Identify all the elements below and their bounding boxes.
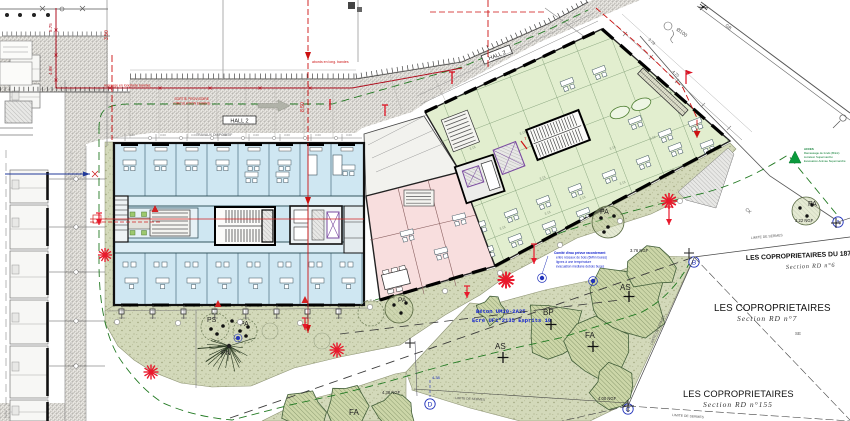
svg-text:3.00: 3.00: [253, 133, 259, 137]
svg-text:TRAVAUX DISPOSITIF: TRAVAUX DISPOSITIF: [196, 133, 232, 137]
svg-text:Ø100: Ø100: [675, 27, 689, 39]
svg-text:HALL 2: HALL 2: [230, 118, 248, 124]
svg-text:Béton UM10-2A35: Béton UM10-2A35: [476, 308, 526, 315]
svg-text:3.00: 3.00: [315, 133, 321, 137]
svg-text:4.38 NGF: 4.38 NGF: [382, 390, 401, 395]
svg-text:D: D: [428, 401, 433, 408]
svg-text:3.50: 3.50: [104, 30, 110, 40]
svg-text:AS: AS: [495, 342, 506, 351]
svg-text:abords en long. bandes: abords en long. bandes: [312, 60, 349, 64]
svg-text:CK: CK: [744, 207, 752, 215]
svg-text:AS: AS: [620, 283, 631, 292]
svg-text:PN: PN: [221, 350, 231, 357]
svg-text:Section RD n°6: Section RD n°6: [786, 262, 836, 271]
svg-text:Comité d'eau prévue racordemen: Comité d'eau prévue racordement: [554, 251, 606, 255]
svg-text:FA: FA: [349, 408, 359, 417]
svg-text:3.22 NGF: 3.22 NGF: [795, 218, 814, 223]
svg-text:PA: PA: [600, 209, 609, 216]
svg-text:Section RD n°7: Section RD n°7: [737, 314, 797, 323]
svg-text:LIMITE DE SERMES: LIMITE DE SERMES: [672, 413, 705, 419]
svg-text:3.00: 3.00: [160, 133, 166, 137]
svg-text:BP: BP: [543, 308, 554, 317]
svg-text:3.76 NGF: 3.76 NGF: [630, 248, 649, 253]
svg-text:entre réseaux de bois (6Mhn bu: entre réseaux de bois (6Mhn buées): [556, 256, 607, 260]
svg-text:SE: SE: [795, 331, 801, 336]
svg-text:lignes à une température: lignes à une température: [556, 260, 591, 264]
svg-text:3.78: 3.78: [647, 37, 657, 46]
svg-text:4.98: 4.98: [48, 66, 53, 75]
svg-text:Evacuation Animée Supermarché: Evacuation Animée Supermarché: [804, 159, 846, 163]
svg-text:5.75: 5.75: [48, 23, 53, 32]
svg-text:Section RD n°155: Section RD n°155: [703, 400, 773, 409]
svg-text:Ecré UF1*2135 Esprits 10: Ecré UF1*2135 Esprits 10: [472, 317, 551, 324]
svg-text:LIMITE DE SERMES: LIMITE DE SERMES: [751, 233, 784, 240]
svg-text:3.00: 3.00: [346, 133, 352, 137]
svg-text:B: B: [692, 259, 697, 266]
svg-text:FA: FA: [585, 331, 595, 340]
svg-text:PA: PA: [808, 201, 817, 208]
svg-text:LES COPROPRIETAIRES: LES COPROPRIETAIRES: [683, 389, 794, 399]
svg-text:3.00: 3.00: [284, 133, 290, 137]
svg-text:4.38: 4.38: [432, 375, 441, 380]
svg-text:évacuation médiane debois buse: évacuation médiane debois buses: [556, 265, 605, 269]
svg-text:SORTIE PROVISOIRE: SORTIE PROVISOIRE: [174, 97, 209, 101]
svg-text:4.00 NGF: 4.00 NGF: [598, 396, 617, 401]
svg-text:CIRCULATION ENGINS: CIRCULATION ENGINS: [173, 102, 210, 106]
svg-text:LES COPROPRIETAIRES: LES COPROPRIETAIRES: [714, 303, 831, 314]
svg-text:3.00: 3.00: [129, 133, 135, 137]
svg-text:GB: GB: [724, 23, 732, 31]
svg-text:PA: PA: [398, 297, 407, 304]
svg-text:LES COPROPRIETAIRES DU 187 RUE: LES COPROPRIETAIRES DU 187 RUE DU.: [746, 249, 850, 262]
svg-text:8.50: 8.50: [300, 102, 306, 112]
